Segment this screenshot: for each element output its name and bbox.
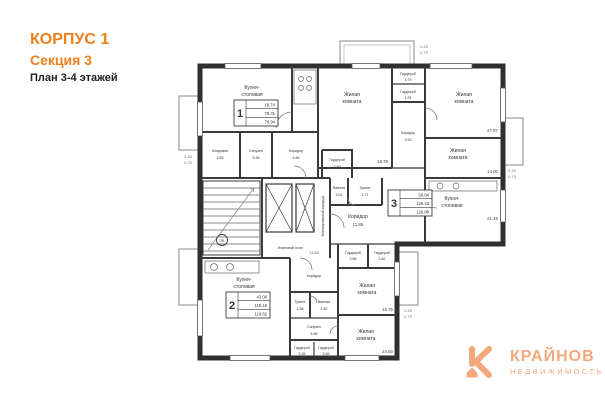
room-label: Жилая	[450, 148, 466, 154]
room-label: Внеквартирный коридор	[321, 196, 325, 237]
room-area: 2.82	[321, 307, 328, 311]
room-area: 3.26	[299, 352, 306, 356]
room-area: 21.46	[487, 216, 499, 221]
room-label: Лифтовой холл	[277, 246, 303, 250]
room-area: 2.82	[379, 257, 386, 261]
dimension-label: 0.73	[404, 315, 411, 319]
room-area: 1.81	[405, 96, 412, 100]
stamp-row: 78.31	[265, 111, 276, 116]
stamp-number: 3	[391, 198, 397, 210]
room-label: Кладовая	[212, 149, 228, 153]
stamp-row: 78.94	[265, 120, 276, 125]
room-label: Кухня-	[236, 277, 251, 283]
stamp-number: 1	[237, 108, 243, 120]
stairs	[203, 181, 260, 255]
room-label: Жилая	[359, 283, 375, 289]
dimension-label: 2.43	[404, 309, 411, 313]
room-label: Коридор	[401, 131, 415, 135]
stamp-row: 126.43	[416, 201, 429, 206]
room-area: 2.86	[350, 257, 357, 261]
room-area: 4.86	[311, 332, 318, 336]
room-area: 2.89	[334, 165, 341, 169]
dimension-label: 0.73	[508, 175, 515, 179]
logo-subtitle: НЕДВИЖИМОСТЬ	[510, 367, 604, 376]
room-area: 24.60	[382, 349, 394, 354]
room-label: Гардероб	[294, 346, 310, 350]
logo-k-house-icon	[462, 342, 502, 382]
dimension-label: 0.73	[184, 161, 191, 165]
room-label: Гардероб	[329, 158, 345, 162]
room-label: Коридор	[348, 214, 368, 220]
room-label: Кухня-	[444, 196, 459, 202]
room-area: 16.75	[382, 307, 394, 312]
apartment-stamp-3: 3 56.84 126.43 126.88	[388, 190, 432, 216]
room-label: Санузел	[307, 325, 321, 329]
room-area: 3.59	[323, 352, 330, 356]
room-label: комната	[357, 336, 376, 342]
room-label: столовая	[241, 92, 263, 98]
room-label: Ванная	[318, 300, 330, 304]
apartment-stamp-2: 2 43.08 115.16 116.82	[226, 292, 270, 318]
room-label: Кухня-	[244, 85, 259, 91]
room-label: Гардероб	[345, 251, 361, 255]
room-label: Жилая	[344, 92, 360, 98]
dimension-label: 2.43	[508, 169, 515, 173]
room-area: 9.53	[405, 138, 412, 142]
room-label: столовая	[233, 284, 255, 290]
agency-logo: КРАЙНОВ НЕДВИЖИМОСТЬ	[462, 342, 604, 382]
room-area: 14.00	[487, 169, 499, 174]
room-label: комната	[343, 99, 362, 105]
room-area: 1.71	[362, 193, 369, 197]
room-label: Жилая	[358, 329, 374, 335]
stamp-number: 2	[229, 300, 235, 312]
room-label: Коридор	[289, 149, 303, 153]
room-label: Гардероб	[374, 251, 390, 255]
stamp-row: 18.74	[265, 103, 276, 108]
balcony-dimensions: 2.43 0.73 2.43 0.73 2.43 0.73 2.43 0.73	[184, 45, 515, 319]
room-label: Туалет	[359, 186, 371, 190]
room-area: 5.86	[293, 156, 300, 160]
stamp-row: 43.08	[257, 295, 268, 300]
room-label: Гардероб	[400, 72, 416, 76]
room-label: Санузел	[249, 149, 263, 153]
logo-name: КРАЙНОВ	[510, 348, 604, 366]
room-label: Гардероб	[318, 346, 334, 350]
room-label: столовая	[441, 203, 463, 209]
room-area: 18.78	[377, 159, 389, 164]
room-area: 11.86	[353, 222, 364, 227]
room-area: 5.38	[253, 156, 260, 160]
room-label: Коридор	[307, 274, 321, 278]
dimension-label: 0.73	[420, 51, 427, 55]
apartment-stamp-1: 1 18.74 78.31 78.94	[234, 100, 278, 126]
elevator-icons	[266, 184, 314, 232]
stamp-row: 56.84	[419, 193, 430, 198]
room-label: комната	[455, 99, 474, 105]
dimension-label: 2.43	[184, 155, 191, 159]
room-label: комната	[449, 155, 468, 161]
room-label: Ванная	[333, 186, 345, 190]
dimension-label: 2.43	[420, 45, 427, 49]
room-area: 1.98	[297, 307, 304, 311]
room-label: Гардероб	[400, 90, 416, 94]
fire-safety-label: ПБ	[220, 239, 226, 243]
dimension-label: 13.86	[309, 251, 319, 255]
room-label: Жилая	[456, 92, 472, 98]
room-area: 4.85	[217, 156, 224, 160]
room-area: 27.87	[487, 128, 499, 133]
stamp-row: 116.82	[255, 312, 268, 317]
room-area: 3.01	[336, 193, 343, 197]
stamp-row: 115.16	[255, 303, 268, 308]
room-label: комната	[358, 290, 377, 296]
floor-plan-page: КОРПУС 1 Секция 3 План 3-4 этажей	[0, 0, 605, 403]
room-label: Туалет	[294, 300, 306, 304]
room-area: 1.79	[405, 78, 412, 82]
stamp-row: 126.88	[416, 210, 429, 215]
